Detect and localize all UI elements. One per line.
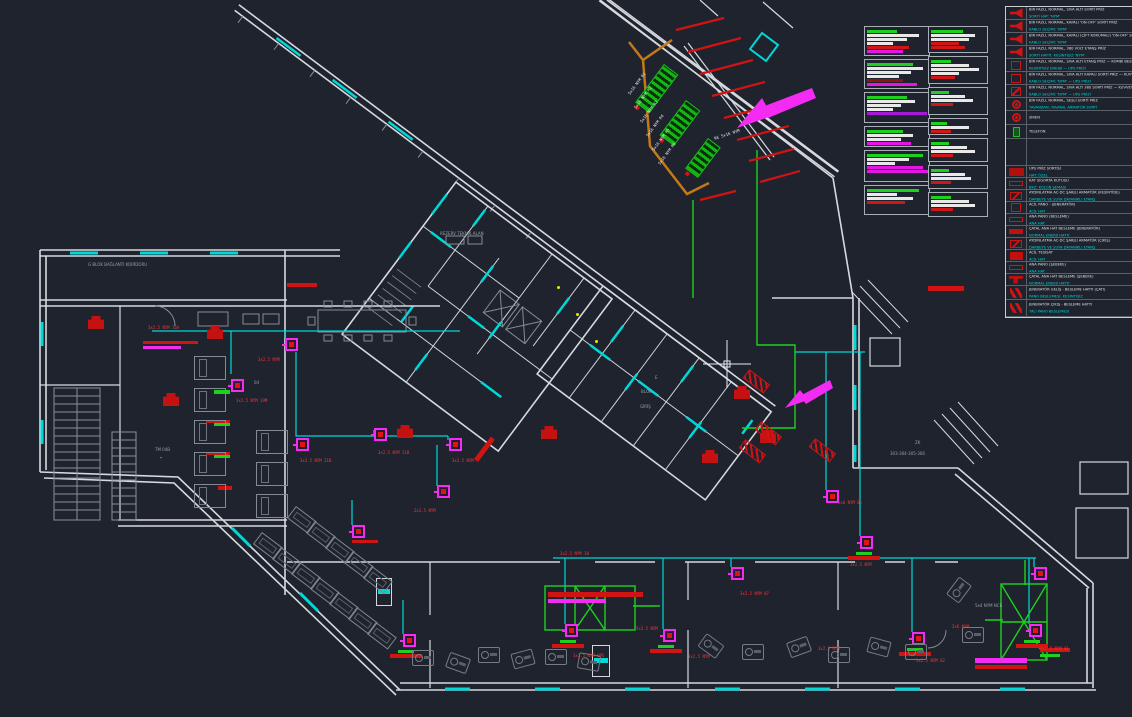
legend-row[interactable]: SİREN	[1006, 111, 1132, 125]
legend-row[interactable]: BİR FAZLI, NORMAL, KAPALI 'ON-OFF' SORTİ…	[1006, 20, 1132, 33]
legend-row[interactable]: ACİL TESİSAT ACİL HAT	[1006, 250, 1132, 262]
legend-symbol-icon	[1011, 203, 1021, 212]
legend-row[interactable]: TELEFON	[1006, 125, 1132, 139]
legend-text-prim: BİR FAZLI, NORMAL, KAPALI (ÇİFT KORUMALI…	[1029, 34, 1083, 38]
legend-row[interactable]: ACİL PANO - (JENERATÖR) ACİL HAT	[1006, 202, 1132, 214]
legend-text-prim: BİR FAZLI, NORMAL, SIVA ALTI ETANŞ PRİZ …	[1029, 60, 1083, 64]
legend-text-prim: ACİL PANO - (JENERATÖR)	[1029, 202, 1083, 206]
legend-symbol-icon	[1010, 288, 1022, 298]
legend-text-prim: UPS PRİZ SORTİSİ	[1029, 166, 1083, 170]
legend-text-sec: KABLO SEÇİMİ: 'NYM'	[1029, 28, 1083, 32]
legend-text-prim: ACİL TESİSAT	[1029, 250, 1083, 254]
legend-row[interactable]: KAT SIGORTA KUTUSU BKZ: KOLON ŞEMASI	[1006, 178, 1132, 190]
legend-text-sec: ACİL HAT	[1029, 209, 1083, 213]
legend-table[interactable]: BİR FAZLI, NORMAL, SIVA ALTI SORTİ PRİZ …	[1005, 6, 1132, 318]
legend-text-sec: ANA HAT	[1029, 221, 1083, 225]
legend-text-prim: JENERATÖR ÇIKIŞ - BESLEME HATTI	[1029, 303, 1083, 307]
legend-symbol-icon	[1012, 100, 1021, 109]
legend-row[interactable]: JENERATÖR GELİŞ - BESLEME HATTI (ÇATI) P…	[1006, 286, 1132, 300]
legend-text-sec: TALİ PANO BESLEMESİ	[1029, 310, 1083, 314]
legend-text-prim: AYDINLATMA AC-DC ŞARJLI ARMATÜR (ÇIKIŞ)	[1029, 238, 1083, 242]
legend-text-prim: ÇATAL ANA HAT BESLEME (ŞEBEKE)	[1029, 274, 1083, 278]
legend-row[interactable]: AYDINLATMA AC-DC ŞARJLI ARMATÜR (ÇIKIŞ) …	[1006, 238, 1132, 250]
legend-text-sec: KABLO SEÇİMİ: 'NYM'	[1029, 41, 1083, 45]
legend-text-sec: ANA HAT	[1029, 269, 1083, 273]
legend-text-sec: DARBEYE VE SUYA DAYANIKLI ETANŞ	[1029, 245, 1083, 249]
legend-row[interactable]: AYDINLATMA AC-DC ŞARJLI ARMATÜR (KESİNTİ…	[1006, 190, 1132, 202]
legend-symbol-icon	[1013, 127, 1020, 137]
legend-text-prim: BİR FAZLI, NORMAL, SESLİ SORTİ PRİZ	[1029, 99, 1083, 103]
legend-symbol-icon	[1010, 47, 1023, 57]
legend-symbol-icon	[1010, 240, 1022, 248]
legend-text-sec: NORMAL ENERJİ HATTI	[1029, 233, 1083, 237]
legend-text-sec: TAVANDAN, TAVANA, ARMATÜR SORTİ	[1029, 106, 1083, 110]
legend-row[interactable]: ÇATAL ANA HAT BESLEME (JENERATÖR) NORMAL…	[1006, 226, 1132, 238]
legend-symbol-icon	[1010, 21, 1023, 31]
legend-text-prim: TELEFON	[1029, 130, 1083, 134]
legend-text-prim: AYDINLATMA AC-DC ŞARJLI ARMATÜR (KESİNTİ…	[1029, 190, 1083, 194]
green-circuits	[545, 150, 1047, 660]
legend-text-sec: KABLO SEÇİMİ: 'NYM' — UPS PRİZİ	[1029, 80, 1083, 84]
legend-row[interactable]	[1006, 139, 1132, 166]
legend-text-sec: HAT: ÖZEL	[1029, 173, 1083, 177]
legend-row[interactable]: BİR FAZLI, NORMAL, 380 VOLT ETANŞ PRİZ S…	[1006, 46, 1132, 59]
legend-text-sec: KESİNTİSİZ ENERJİ — UPS PRİZİ	[1029, 67, 1083, 71]
legend-text-prim: BİR FAZLI, NORMAL, KAPALI 'ON-OFF' SORTİ…	[1029, 21, 1083, 25]
legend-text-prim: ANA PANO (ŞEBEKE)	[1029, 262, 1083, 266]
legend-symbol-icon	[1012, 113, 1021, 122]
legend-symbol-icon	[1010, 8, 1023, 18]
legend-text-prim: SİREN	[1029, 116, 1083, 120]
legend-text-sec: DARBEYE VE SUYA DAYANIKLI ETANŞ	[1029, 197, 1083, 201]
legend-symbol-icon	[1010, 192, 1022, 200]
legend-text-sec: NORMAL ENERJİ HATTI	[1029, 281, 1083, 285]
legend-row[interactable]: BİR FAZLI, NORMAL, SIVA ALTI SORTİ PRİZ …	[1006, 7, 1132, 20]
floorplan-drawing[interactable]	[0, 0, 1132, 717]
legend-symbol-icon	[1011, 61, 1021, 70]
legend-symbol-icon	[1009, 181, 1023, 186]
crosshair-cursor	[703, 340, 751, 388]
legend-symbol-icon	[1009, 276, 1023, 284]
staircase	[54, 388, 136, 520]
legend-row[interactable]: BİR FAZLI, NORMAL, SIVA ALTI 380 SORTİ P…	[1006, 85, 1132, 98]
legend-row[interactable]: ÇATAL ANA HAT BESLEME (ŞEBEKE) NORMAL EN…	[1006, 274, 1132, 286]
legend-text-prim: BİR FAZLI, NORMAL, SIVA ALTI 380 SORTİ P…	[1029, 86, 1083, 90]
legend-row[interactable]: BİR FAZLI, NORMAL, KAPALI (ÇİFT KORUMALI…	[1006, 33, 1132, 46]
rotated-core-layer	[118, 0, 911, 568]
legend-row[interactable]: BİR FAZLI, NORMAL, SIVA ALTI ETANŞ PRİZ …	[1006, 59, 1132, 72]
legend-text-prim: ANA PANO (BESLEME)	[1029, 214, 1083, 218]
legend-symbol-icon	[1009, 217, 1023, 222]
legend-symbol-icon	[1010, 303, 1022, 313]
legend-text-sec: KABLO SEÇİMİ: 'NYM' — UPS PRİZİ	[1029, 93, 1083, 97]
legend-text-prim: ÇATAL ANA HAT BESLEME (JENERATÖR)	[1029, 226, 1083, 230]
legend-symbol-icon	[1009, 229, 1023, 234]
legend-symbol-icon	[1010, 252, 1023, 260]
legend-symbol-icon	[1010, 34, 1023, 44]
legend-row[interactable]: JENERATÖR ÇIKIŞ - BESLEME HATTI TALİ PAN…	[1006, 300, 1132, 317]
legend-text-sec: ACİL HAT	[1029, 257, 1083, 261]
legend-text-sec: PANO BESLEMESİ, KESİNTİSİZ	[1029, 294, 1083, 298]
legend-text-prim: BİR FAZLI, NORMAL, SIVA ALTI SORTİ PRİZ	[1029, 8, 1083, 12]
legend-row[interactable]: ANA PANO (BESLEME) ANA HAT	[1006, 214, 1132, 226]
legend-symbol-icon	[1009, 265, 1023, 270]
legend-symbol-icon	[1009, 168, 1024, 176]
legend-row[interactable]: BİR FAZLI, NORMAL, SESLİ SORTİ PRİZ TAVA…	[1006, 98, 1132, 111]
legend-symbol-icon	[1011, 87, 1021, 96]
legend-text-sec: BKZ: KOLON ŞEMASI	[1029, 185, 1083, 189]
legend-row[interactable]: ANA PANO (ŞEBEKE) ANA HAT	[1006, 262, 1132, 274]
legend-row[interactable]: BİR FAZLI, NORMAL, SIVA ALTI KAPALI SORT…	[1006, 72, 1132, 85]
walls-layer	[40, 0, 1128, 695]
legend-text-prim: KAT SIGORTA KUTUSU	[1029, 178, 1083, 182]
legend-row[interactable]: UPS PRİZ SORTİSİ HAT: ÖZEL	[1006, 166, 1132, 178]
legend-text-sec: SORTİ HATTI: KESİNTİSİZ 'NYM'	[1029, 54, 1083, 58]
cad-viewport[interactable]: 3x2.5 NYM 16A3x2.5 NYM3x2.5 NYM 19M3x2.5…	[0, 0, 1132, 717]
legend-text-sec: SORTİ HAT: 'NYM'	[1029, 15, 1083, 19]
legend-text-prim: JENERATÖR GELİŞ - BESLEME HATTI (ÇATI)	[1029, 287, 1083, 291]
legend-text-prim: BİR FAZLI, NORMAL, SIVA ALTI KAPALI SORT…	[1029, 73, 1083, 77]
legend-symbol-icon	[1011, 74, 1021, 83]
legend-text-prim: BİR FAZLI, NORMAL, 380 VOLT ETANŞ PRİZ	[1029, 47, 1083, 51]
